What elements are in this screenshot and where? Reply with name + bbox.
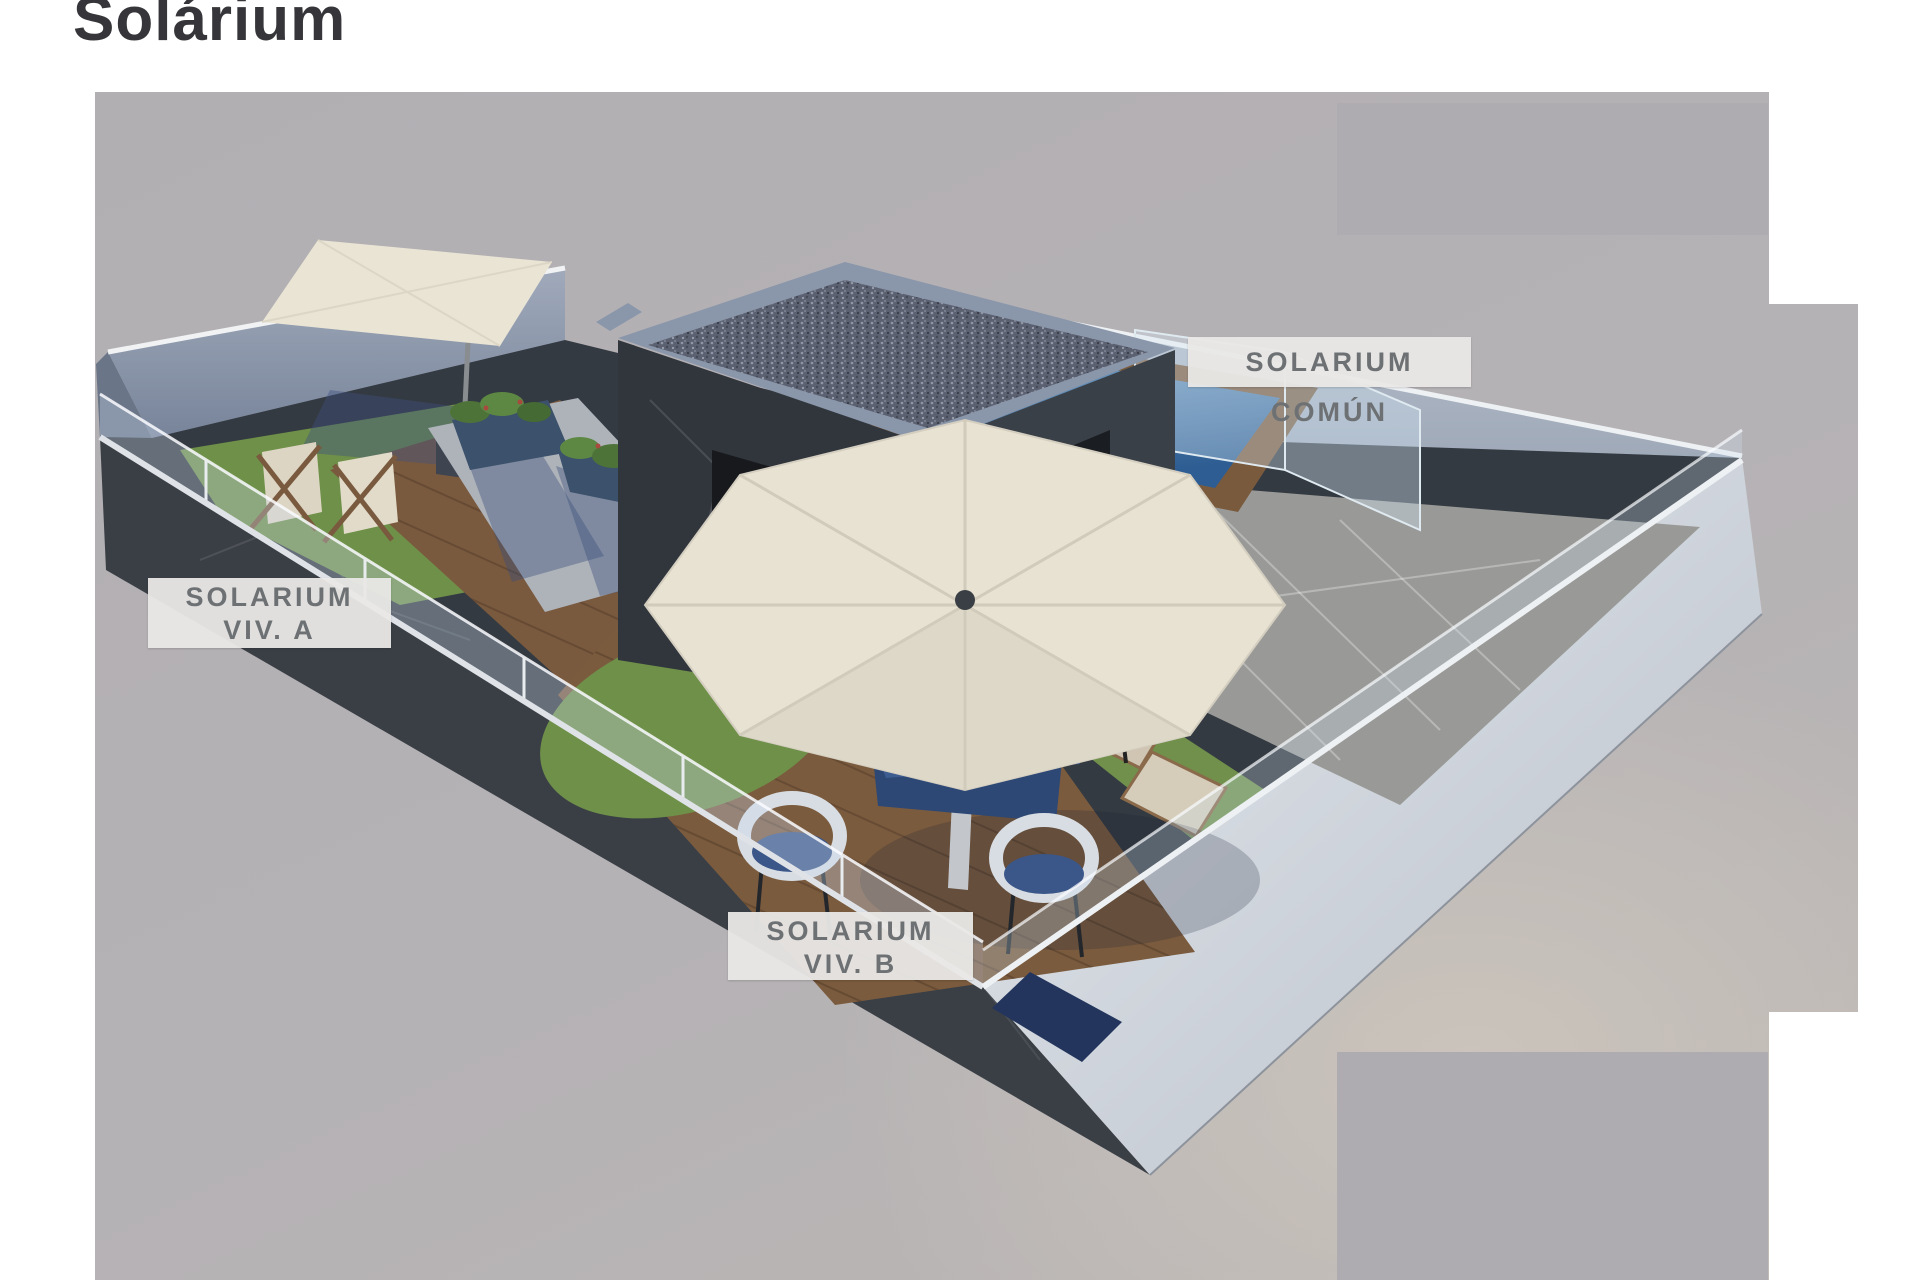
- presentation-slide: Solárium: [0, 0, 1920, 1280]
- solarium-3d-render: SOLARIUM COMÚN SOLARIUM VIV. A SOLARIUM …: [95, 92, 1858, 1280]
- gray-cover-rectangle-top: [1337, 103, 1768, 235]
- page-title: Solárium: [73, 0, 346, 55]
- label-line: VIV. A: [148, 614, 391, 647]
- label-line: VIV. B: [728, 948, 973, 981]
- label-line: SOLARIUM: [728, 915, 973, 948]
- white-cover-rectangle-bottom: [1769, 1012, 1858, 1280]
- label-solarium-viv-a: SOLARIUM VIV. A: [148, 578, 391, 648]
- octagonal-umbrella: [645, 420, 1285, 790]
- label-solarium-viv-b: SOLARIUM VIV. B: [728, 912, 973, 980]
- label-solarium-comun: SOLARIUM COMÚN: [1188, 337, 1471, 387]
- label-line: SOLARIUM: [148, 581, 391, 614]
- gray-cover-rectangle-bottom: [1337, 1052, 1768, 1280]
- white-cover-rectangle-top: [1769, 92, 1858, 304]
